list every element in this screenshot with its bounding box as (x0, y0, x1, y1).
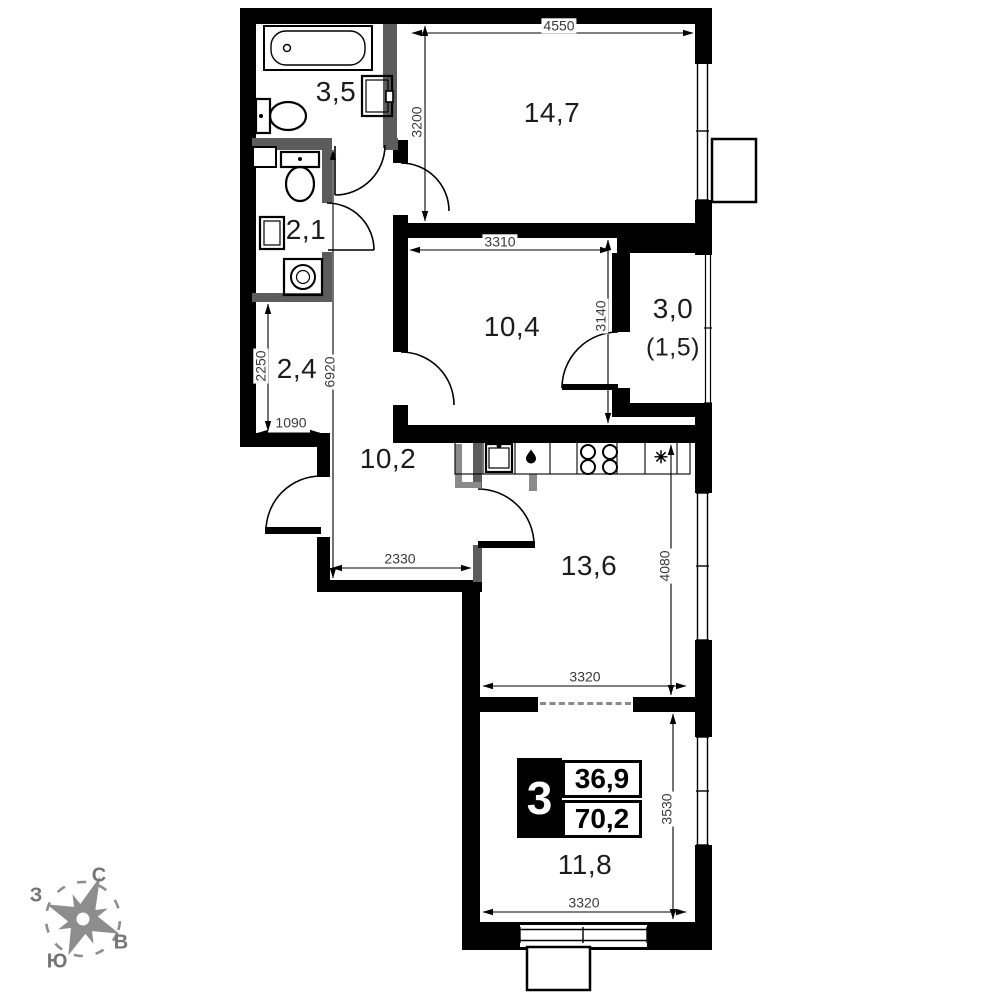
dim-2250: 2250 (253, 348, 268, 383)
area-label-balcony: 3,0 (653, 293, 693, 325)
kitchen-sink-icon (486, 444, 512, 472)
area-label-bathroom: 3,5 (316, 76, 356, 108)
toilet-bathroom-icon (256, 99, 306, 133)
door-wc (327, 203, 374, 250)
washbasin-icon (362, 76, 393, 116)
toilet-wc-icon (281, 152, 319, 201)
living-area-box: 36,9 (562, 760, 642, 798)
dim-3320-kitchen: 3320 (567, 669, 602, 684)
dim-4550: 4550 (541, 18, 576, 33)
door-entrance (265, 476, 321, 534)
area-label-lowerroom: 11,8 (558, 849, 612, 881)
dishwasher-drop-icon (526, 450, 536, 464)
compass-east-label: В (114, 932, 128, 955)
ac-basket-living (712, 139, 756, 202)
compass-west-label: З (30, 885, 43, 908)
door-bathroom (335, 145, 385, 195)
dim-3140: 3140 (593, 298, 608, 333)
window-bottom (520, 925, 647, 947)
balcony-glazing (704, 253, 712, 403)
area-label-kitchen: 13,6 (561, 550, 618, 582)
ac-basket-bottom (527, 947, 590, 990)
bathtub-icon (264, 26, 372, 70)
window-lowerroom-right (696, 737, 709, 845)
dim-4080: 4080 (657, 548, 672, 583)
dim-3200: 3200 (409, 104, 424, 139)
area-label-wc: 2,1 (286, 214, 326, 246)
dim-2330: 2330 (382, 551, 417, 566)
compass-north-label: С (92, 865, 106, 888)
hob-burners-icon (581, 445, 617, 474)
dim-1090: 1090 (273, 415, 308, 430)
dim-6920: 6920 (322, 354, 337, 389)
door-bedroom (401, 352, 454, 405)
dim-3530: 3530 (659, 791, 674, 826)
sink-wc-icon (260, 217, 284, 249)
dim-3310: 3310 (482, 234, 517, 249)
compass-south-label: Ю (47, 951, 68, 974)
floor-plan: 3,5 2,1 2,4 14,7 10,4 3,0 (1,5) 10,2 13,… (0, 0, 1000, 1000)
total-area-box: 70,2 (562, 800, 642, 838)
area-label-living: 14,7 (524, 97, 581, 129)
window-kitchen-right (696, 493, 709, 640)
vent-star-icon: ✳ (654, 448, 668, 468)
area-label-bedroom: 10,4 (484, 311, 541, 343)
door-balcony (562, 332, 618, 390)
washing-machine-icon (284, 259, 322, 295)
compass-rose (21, 857, 145, 981)
door-kitchen (478, 489, 535, 548)
dim-3320-room: 3320 (566, 895, 601, 910)
area-label-balcony-reduced: (1,5) (646, 334, 700, 363)
area-label-corridor: 10,2 (360, 443, 417, 475)
rooms-count-badge: 3 (517, 758, 562, 838)
shelf-box-icon (253, 147, 276, 167)
window-living-right (696, 62, 709, 200)
area-label-hall: 2,4 (277, 353, 317, 385)
